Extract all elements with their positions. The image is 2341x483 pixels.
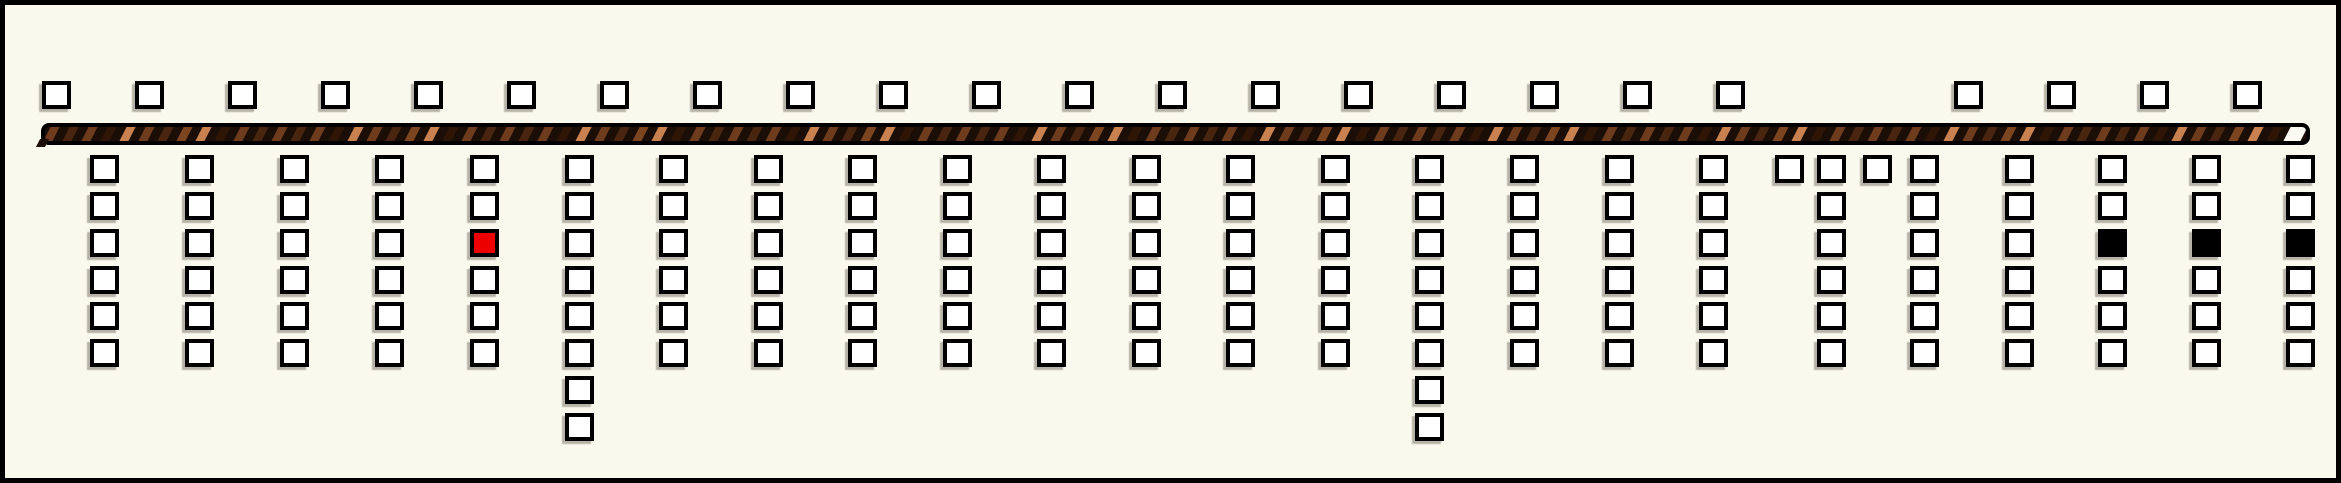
grid-square bbox=[1817, 302, 1846, 330]
bar-stripe bbox=[2188, 123, 2208, 145]
top-row-square bbox=[786, 81, 815, 109]
bar-stripe bbox=[972, 123, 992, 145]
grid-square bbox=[375, 339, 404, 367]
grid-square bbox=[1605, 155, 1634, 183]
grid-square bbox=[375, 229, 404, 257]
grid-square bbox=[1226, 266, 1255, 294]
bar-stripe bbox=[383, 123, 403, 145]
bar-stripe bbox=[725, 123, 745, 145]
top-row-square bbox=[1716, 81, 1745, 109]
grid-square bbox=[1321, 192, 1350, 220]
grid-square bbox=[1132, 339, 1161, 367]
grid-square bbox=[1415, 413, 1444, 441]
top-row-square bbox=[2047, 81, 2076, 109]
bar-stripe bbox=[174, 123, 194, 145]
grid-square bbox=[1699, 266, 1728, 294]
top-row-square bbox=[414, 81, 443, 109]
grid-square bbox=[470, 192, 499, 220]
bar-stripe bbox=[2207, 123, 2227, 145]
diagram-canvas bbox=[0, 0, 2341, 483]
bar-stripe bbox=[1865, 123, 1885, 145]
bar-stripe bbox=[288, 123, 308, 145]
grid-square bbox=[470, 266, 499, 294]
grid-square bbox=[659, 339, 688, 367]
grid-square bbox=[1910, 302, 1939, 330]
bar-stripe bbox=[649, 123, 669, 145]
grid-square bbox=[2192, 302, 2221, 330]
grid-square-black bbox=[2286, 229, 2315, 257]
grid-square bbox=[1817, 266, 1846, 294]
bar-stripe bbox=[953, 123, 973, 145]
grid-square bbox=[848, 339, 877, 367]
bar-stripe bbox=[687, 123, 707, 145]
bar-stripe bbox=[2245, 123, 2265, 145]
grid-square bbox=[1321, 155, 1350, 183]
grid-square bbox=[90, 302, 119, 330]
grid-square bbox=[1415, 155, 1444, 183]
bar-stripe bbox=[1200, 123, 1220, 145]
grid-square bbox=[1817, 229, 1846, 257]
grid-square bbox=[1415, 376, 1444, 404]
bar-stripe bbox=[1808, 123, 1828, 145]
grid-square bbox=[1321, 229, 1350, 257]
grid-square bbox=[848, 192, 877, 220]
grid-square bbox=[1321, 302, 1350, 330]
grid-square bbox=[1699, 302, 1728, 330]
bar-stripe bbox=[706, 123, 726, 145]
bar-stripe bbox=[1409, 123, 1429, 145]
bar-stripe bbox=[782, 123, 802, 145]
grid-square bbox=[565, 155, 594, 183]
bar-stripe bbox=[1295, 123, 1315, 145]
grid-square bbox=[1037, 229, 1066, 257]
top-row-square bbox=[1954, 81, 1983, 109]
grid-square bbox=[565, 192, 594, 220]
grid-square bbox=[1510, 339, 1539, 367]
grid-square bbox=[2286, 266, 2315, 294]
grid-square bbox=[2098, 339, 2127, 367]
grid-square bbox=[848, 302, 877, 330]
grid-square-black bbox=[2192, 229, 2221, 257]
bar-stripe bbox=[1048, 123, 1068, 145]
grid-square bbox=[659, 192, 688, 220]
bar-stripe bbox=[1238, 123, 1258, 145]
bar-stripe bbox=[668, 123, 688, 145]
top-row-square bbox=[1251, 81, 1280, 109]
grid-square bbox=[943, 192, 972, 220]
grid-square bbox=[754, 192, 783, 220]
bar-stripe bbox=[1010, 123, 1030, 145]
bar-stripe bbox=[1827, 123, 1847, 145]
top-row-square bbox=[42, 81, 71, 109]
grid-square bbox=[1910, 266, 1939, 294]
bar-stripe bbox=[1751, 123, 1771, 145]
grid-square bbox=[1132, 229, 1161, 257]
bar-stripe bbox=[2131, 123, 2151, 145]
grid-square bbox=[185, 302, 214, 330]
bar-stripe bbox=[1922, 123, 1942, 145]
grid-square bbox=[375, 155, 404, 183]
bar-stripe bbox=[858, 123, 878, 145]
grid-square bbox=[1415, 302, 1444, 330]
bar-stripe bbox=[1124, 123, 1144, 145]
grid-square bbox=[1910, 229, 1939, 257]
grid-square bbox=[1605, 192, 1634, 220]
grid-square bbox=[1226, 155, 1255, 183]
grid-square bbox=[1132, 302, 1161, 330]
bar-stripe bbox=[2055, 123, 2075, 145]
bar-stripe bbox=[478, 123, 498, 145]
grid-square bbox=[2005, 266, 2034, 294]
top-row-square bbox=[228, 81, 257, 109]
grid-square bbox=[470, 339, 499, 367]
bar-stripe bbox=[592, 123, 612, 145]
striped-timeline-bar bbox=[41, 123, 2310, 145]
grid-square bbox=[659, 302, 688, 330]
grid-square bbox=[1226, 302, 1255, 330]
grid-square bbox=[2286, 339, 2315, 367]
grid-square bbox=[1415, 229, 1444, 257]
grid-square bbox=[754, 229, 783, 257]
bar-stripe bbox=[1941, 123, 1961, 145]
grid-square bbox=[280, 155, 309, 183]
bar-stripe bbox=[1998, 123, 2018, 145]
grid-square bbox=[375, 266, 404, 294]
bar-stripe bbox=[2150, 123, 2170, 145]
bar-stripe bbox=[1067, 123, 1087, 145]
bar-stripe bbox=[250, 123, 270, 145]
bar-stripe bbox=[1181, 123, 1201, 145]
grid-square bbox=[943, 339, 972, 367]
grid-square bbox=[943, 155, 972, 183]
grid-square bbox=[565, 266, 594, 294]
grid-square bbox=[943, 229, 972, 257]
grid-square bbox=[2098, 155, 2127, 183]
grid-square bbox=[280, 339, 309, 367]
grid-square bbox=[1321, 339, 1350, 367]
bar-stripe bbox=[2093, 123, 2113, 145]
grid-square bbox=[2098, 192, 2127, 220]
bar-stripe bbox=[1979, 123, 1999, 145]
top-row-square bbox=[1530, 81, 1559, 109]
bar-stripe bbox=[2036, 123, 2056, 145]
grid-square bbox=[565, 302, 594, 330]
grid-square bbox=[2192, 192, 2221, 220]
grid-square bbox=[565, 376, 594, 404]
bar-stripe bbox=[2112, 123, 2132, 145]
grid-square bbox=[2286, 192, 2315, 220]
grid-square bbox=[2286, 155, 2315, 183]
grid-square-red bbox=[470, 229, 499, 257]
grid-square bbox=[1132, 192, 1161, 220]
grid-square bbox=[1226, 339, 1255, 367]
bar-stripe bbox=[79, 123, 99, 145]
bar-stripe bbox=[497, 123, 517, 145]
grid-square bbox=[2005, 339, 2034, 367]
top-row-square bbox=[321, 81, 350, 109]
bar-stripe bbox=[1504, 123, 1524, 145]
grid-square bbox=[943, 266, 972, 294]
bar-stripe bbox=[839, 123, 859, 145]
grid-square bbox=[470, 155, 499, 183]
grid-square bbox=[1775, 155, 1804, 183]
bar-stripe bbox=[2169, 123, 2189, 145]
top-row-square bbox=[600, 81, 629, 109]
top-row-square bbox=[2140, 81, 2169, 109]
grid-square bbox=[1226, 192, 1255, 220]
grid-square bbox=[90, 229, 119, 257]
bar-stripe bbox=[1029, 123, 1049, 145]
bar-stripe bbox=[155, 123, 175, 145]
bar-stripe bbox=[1656, 123, 1676, 145]
grid-square bbox=[2005, 155, 2034, 183]
grid-square bbox=[1510, 266, 1539, 294]
grid-square bbox=[1226, 229, 1255, 257]
grid-square bbox=[565, 413, 594, 441]
bar-stripe bbox=[991, 123, 1011, 145]
grid-square bbox=[1510, 229, 1539, 257]
bar-stripe bbox=[1770, 123, 1790, 145]
bar-stripe bbox=[326, 123, 346, 145]
bar-stripe bbox=[1903, 123, 1923, 145]
bar-stripe bbox=[630, 123, 650, 145]
bar-stripe bbox=[1143, 123, 1163, 145]
grid-square bbox=[1037, 339, 1066, 367]
grid-square bbox=[1415, 266, 1444, 294]
bar-stripe bbox=[1105, 123, 1125, 145]
grid-square bbox=[2098, 266, 2127, 294]
bar-stripe bbox=[231, 123, 251, 145]
bar-stripe bbox=[2264, 123, 2284, 145]
bar-stripe bbox=[915, 123, 935, 145]
grid-square bbox=[185, 266, 214, 294]
bar-stripe bbox=[1276, 123, 1296, 145]
grid-square bbox=[754, 155, 783, 183]
grid-square bbox=[1037, 192, 1066, 220]
bar-stripe bbox=[535, 123, 555, 145]
bar-stripe bbox=[117, 123, 137, 145]
grid-square bbox=[1510, 302, 1539, 330]
bar-stripe bbox=[744, 123, 764, 145]
grid-square bbox=[1605, 229, 1634, 257]
bar-stripe bbox=[1333, 123, 1353, 145]
bar-stripe bbox=[820, 123, 840, 145]
grid-square bbox=[2192, 339, 2221, 367]
bar-stripe bbox=[1675, 123, 1695, 145]
grid-square bbox=[185, 155, 214, 183]
bar-stripe bbox=[1485, 123, 1505, 145]
bar-stripe bbox=[1523, 123, 1543, 145]
grid-square bbox=[1699, 229, 1728, 257]
grid-square bbox=[90, 192, 119, 220]
bar-stripe bbox=[801, 123, 821, 145]
grid-square bbox=[1415, 192, 1444, 220]
grid-square bbox=[1817, 155, 1846, 183]
bar-stripe bbox=[136, 123, 156, 145]
grid-square bbox=[1910, 192, 1939, 220]
bar-stripe bbox=[1390, 123, 1410, 145]
bar-stripe bbox=[307, 123, 327, 145]
grid-square bbox=[280, 302, 309, 330]
grid-square bbox=[90, 266, 119, 294]
grid-square bbox=[375, 192, 404, 220]
grid-square bbox=[1605, 302, 1634, 330]
bar-stripe bbox=[2074, 123, 2094, 145]
grid-square bbox=[1321, 266, 1350, 294]
grid-square bbox=[1132, 155, 1161, 183]
top-row-square bbox=[1437, 81, 1466, 109]
bar-stripe bbox=[1846, 123, 1866, 145]
bar-stripe bbox=[1789, 123, 1809, 145]
bar-stripe bbox=[877, 123, 897, 145]
bar-stripe bbox=[896, 123, 916, 145]
grid-square bbox=[754, 302, 783, 330]
bar-stripe bbox=[1599, 123, 1619, 145]
grid-square bbox=[754, 266, 783, 294]
bar-stripe bbox=[1219, 123, 1239, 145]
bar-stripe bbox=[1086, 123, 1106, 145]
top-row-square bbox=[1623, 81, 1652, 109]
grid-square bbox=[2192, 266, 2221, 294]
grid-square bbox=[1910, 155, 1939, 183]
grid-square bbox=[848, 229, 877, 257]
bar-stripe bbox=[1466, 123, 1486, 145]
grid-square bbox=[565, 229, 594, 257]
bar-stripe bbox=[345, 123, 365, 145]
bar-stripe bbox=[1352, 123, 1372, 145]
bar-stripe bbox=[611, 123, 631, 145]
bar-stripe bbox=[364, 123, 384, 145]
bar-stripe bbox=[1447, 123, 1467, 145]
grid-square bbox=[2286, 302, 2315, 330]
grid-square bbox=[1132, 266, 1161, 294]
grid-square bbox=[659, 155, 688, 183]
grid-square bbox=[1510, 192, 1539, 220]
bar-stripe bbox=[2226, 123, 2246, 145]
grid-square bbox=[1910, 339, 1939, 367]
grid-square bbox=[375, 302, 404, 330]
bar-stripe bbox=[2017, 123, 2037, 145]
grid-square bbox=[1863, 155, 1892, 183]
bar-stripe bbox=[193, 123, 213, 145]
bar-end-cap bbox=[2281, 123, 2309, 145]
grid-square bbox=[2192, 155, 2221, 183]
bar-stripe bbox=[212, 123, 232, 145]
grid-square bbox=[2005, 192, 2034, 220]
bar-stripe bbox=[440, 123, 460, 145]
bar-stripe bbox=[1884, 123, 1904, 145]
bar-stripe bbox=[1428, 123, 1448, 145]
bar-stripe bbox=[1732, 123, 1752, 145]
top-row-square bbox=[1158, 81, 1187, 109]
grid-square bbox=[280, 229, 309, 257]
grid-square-black bbox=[2098, 229, 2127, 257]
top-row-square bbox=[1344, 81, 1373, 109]
grid-square bbox=[943, 302, 972, 330]
bar-stripe bbox=[1371, 123, 1391, 145]
bar-stripe bbox=[1542, 123, 1562, 145]
bar-stripe bbox=[554, 123, 574, 145]
bar-stripe bbox=[1713, 123, 1733, 145]
grid-square bbox=[1699, 192, 1728, 220]
bar-stripe bbox=[934, 123, 954, 145]
top-row-square bbox=[879, 81, 908, 109]
top-row-square bbox=[693, 81, 722, 109]
top-row-square bbox=[507, 81, 536, 109]
top-row-square bbox=[135, 81, 164, 109]
bar-stripe bbox=[1637, 123, 1657, 145]
grid-square bbox=[1510, 155, 1539, 183]
bar-stripe bbox=[763, 123, 783, 145]
grid-square bbox=[1817, 339, 1846, 367]
grid-square bbox=[90, 339, 119, 367]
bar-stripe bbox=[421, 123, 441, 145]
grid-square bbox=[1037, 155, 1066, 183]
top-row-square bbox=[2233, 81, 2262, 109]
grid-square bbox=[1037, 266, 1066, 294]
grid-square bbox=[470, 302, 499, 330]
grid-square bbox=[185, 192, 214, 220]
top-row-square bbox=[1065, 81, 1094, 109]
top-row-square bbox=[972, 81, 1001, 109]
grid-square bbox=[1817, 192, 1846, 220]
grid-square bbox=[659, 229, 688, 257]
bar-stripe bbox=[459, 123, 479, 145]
bar-stripe bbox=[573, 123, 593, 145]
grid-square bbox=[90, 155, 119, 183]
grid-square bbox=[565, 339, 594, 367]
bar-stripe bbox=[516, 123, 536, 145]
bar-stripe bbox=[1162, 123, 1182, 145]
bar-stripe bbox=[402, 123, 422, 145]
grid-square bbox=[848, 155, 877, 183]
grid-square bbox=[185, 229, 214, 257]
bar-stripe bbox=[60, 123, 80, 145]
bar-stripe bbox=[1618, 123, 1638, 145]
grid-square bbox=[280, 192, 309, 220]
grid-square bbox=[2098, 302, 2127, 330]
bar-stripe bbox=[1960, 123, 1980, 145]
grid-square bbox=[185, 339, 214, 367]
grid-square bbox=[1605, 266, 1634, 294]
grid-square bbox=[1415, 339, 1444, 367]
bar-stripe bbox=[1314, 123, 1334, 145]
grid-square bbox=[1699, 339, 1728, 367]
grid-square bbox=[2005, 302, 2034, 330]
bar-stripe bbox=[1257, 123, 1277, 145]
grid-square bbox=[1605, 339, 1634, 367]
grid-square bbox=[280, 266, 309, 294]
bar-stripe bbox=[1561, 123, 1581, 145]
grid-square bbox=[1699, 155, 1728, 183]
grid-square bbox=[1037, 302, 1066, 330]
grid-square bbox=[659, 266, 688, 294]
grid-square bbox=[848, 266, 877, 294]
bar-stripe bbox=[1694, 123, 1714, 145]
bar-stripe bbox=[1580, 123, 1600, 145]
bar-stripe bbox=[98, 123, 118, 145]
grid-square bbox=[2005, 229, 2034, 257]
bar-stripe bbox=[269, 123, 289, 145]
grid-square bbox=[754, 339, 783, 367]
